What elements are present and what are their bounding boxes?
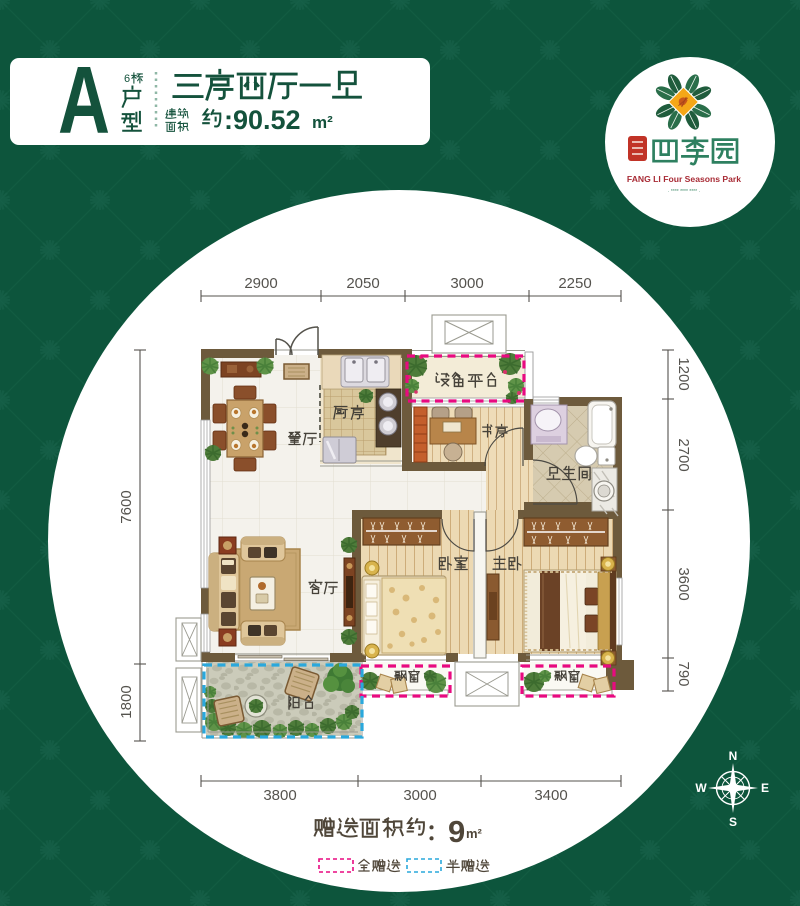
svg-text:W: W	[695, 781, 707, 795]
svg-text:FANG LI Four Seasons Park: FANG LI Four Seasons Park	[627, 174, 741, 184]
svg-text:1800: 1800	[118, 685, 135, 718]
svg-text:3400: 3400	[534, 787, 567, 804]
svg-text:3000: 3000	[403, 787, 436, 804]
svg-text:6: 6	[124, 73, 130, 85]
svg-text:790: 790	[675, 661, 692, 686]
svg-text:E: E	[761, 781, 769, 795]
svg-text:N: N	[729, 749, 738, 763]
svg-text::90.52: :90.52	[224, 105, 301, 135]
svg-text:m²: m²	[466, 826, 483, 841]
svg-text:3600: 3600	[675, 567, 692, 600]
svg-text:2050: 2050	[346, 275, 379, 292]
svg-text:2700: 2700	[675, 438, 692, 471]
svg-text:· **** **** **** ·: · **** **** **** ·	[668, 189, 701, 195]
svg-text:S: S	[729, 815, 737, 829]
svg-text:9: 9	[448, 814, 465, 849]
svg-text:2900: 2900	[244, 275, 277, 292]
svg-text:2250: 2250	[558, 275, 591, 292]
svg-text:m²: m²	[312, 113, 333, 132]
svg-text:3000: 3000	[450, 275, 483, 292]
svg-text:A: A	[58, 47, 110, 154]
svg-text:：: ：	[426, 820, 448, 845]
svg-text:3800: 3800	[263, 787, 296, 804]
svg-text:1200: 1200	[675, 357, 692, 390]
svg-text:7600: 7600	[118, 490, 135, 523]
